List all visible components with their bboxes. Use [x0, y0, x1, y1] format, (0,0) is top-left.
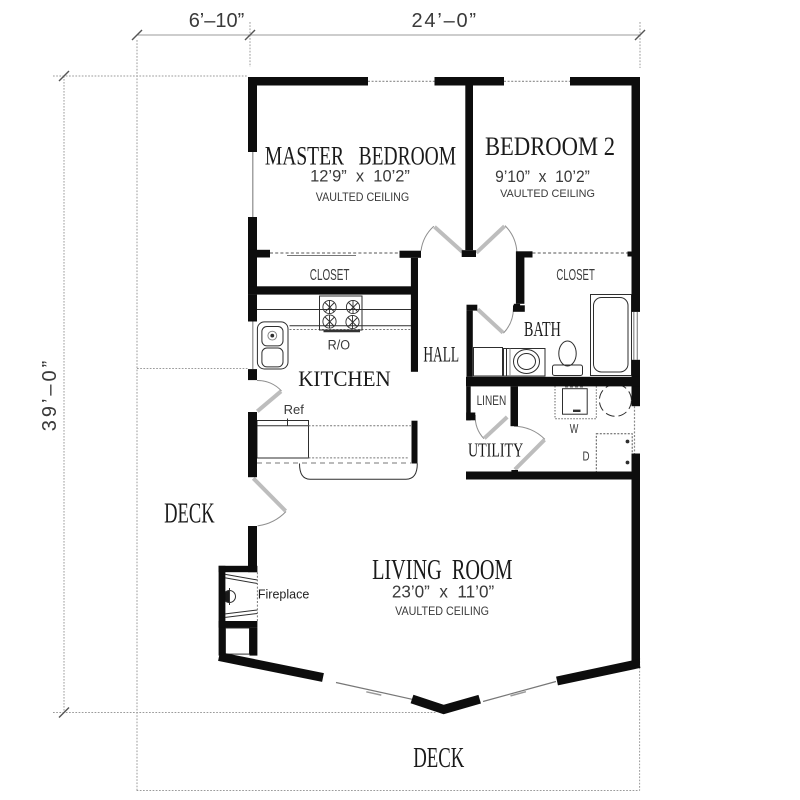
svg-text:VAULTED CEILING: VAULTED CEILING: [395, 606, 489, 619]
svg-text:UTILITY: UTILITY: [468, 439, 524, 461]
svg-text:LINEN: LINEN: [477, 392, 507, 408]
svg-text:VAULTED CEILING: VAULTED CEILING: [500, 188, 595, 200]
svg-text:HALL: HALL: [423, 342, 459, 366]
svg-text:39’–0”: 39’–0”: [39, 358, 61, 432]
svg-text:D: D: [582, 450, 589, 464]
svg-text:R/O: R/O: [328, 337, 350, 353]
svg-text:23’0” x 11’0”: 23’0” x 11’0”: [392, 581, 494, 602]
svg-text:12’9” x 10’2”: 12’9” x 10’2”: [310, 166, 410, 185]
svg-text:6’–10”: 6’–10”: [189, 10, 245, 32]
svg-text:BEDROOM 2: BEDROOM 2: [485, 133, 615, 162]
svg-text:DECK: DECK: [413, 744, 464, 775]
svg-text:VAULTED CEILING: VAULTED CEILING: [316, 192, 409, 204]
svg-text:9’10” x 10’2”: 9’10” x 10’2”: [495, 167, 590, 186]
svg-text:24’–0”: 24’–0”: [411, 10, 477, 32]
svg-text:BATH: BATH: [524, 317, 561, 340]
svg-text:Ref: Ref: [284, 402, 305, 417]
svg-text:DECK: DECK: [164, 497, 215, 529]
svg-text:W: W: [570, 423, 579, 437]
svg-text:CLOSET: CLOSET: [556, 265, 594, 283]
svg-text:Fireplace: Fireplace: [258, 588, 309, 602]
svg-text:KITCHEN: KITCHEN: [298, 367, 391, 391]
svg-text:CLOSET: CLOSET: [310, 266, 350, 284]
